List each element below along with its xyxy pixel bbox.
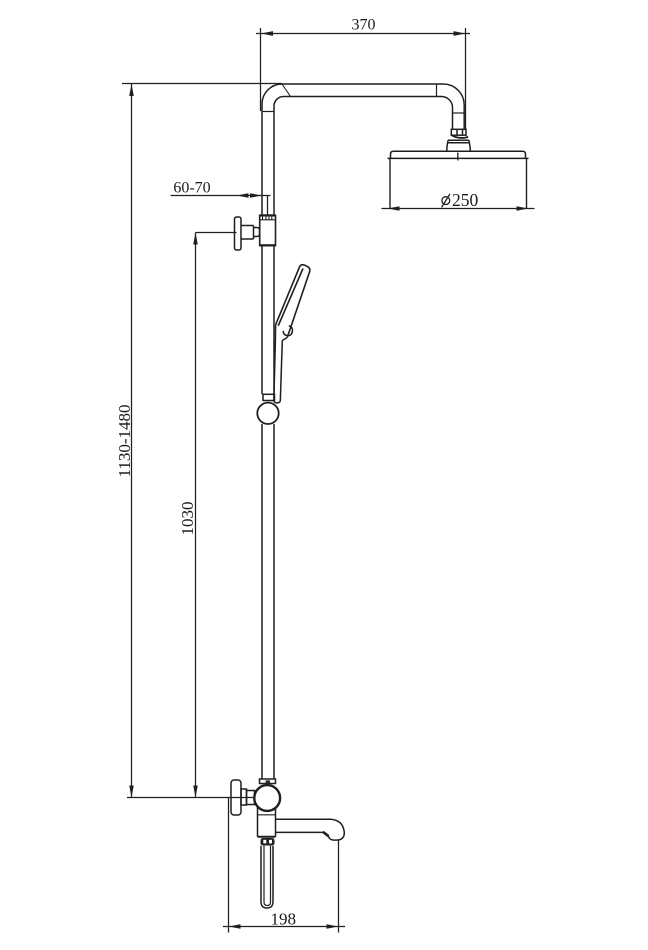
svg-text:250: 250 — [452, 190, 479, 210]
svg-text:1130-1480: 1130-1480 — [115, 404, 134, 477]
svg-text:1030: 1030 — [178, 502, 197, 536]
svg-text:370: 370 — [352, 17, 376, 34]
svg-text:60-70: 60-70 — [173, 180, 210, 197]
svg-text:198: 198 — [271, 910, 297, 929]
